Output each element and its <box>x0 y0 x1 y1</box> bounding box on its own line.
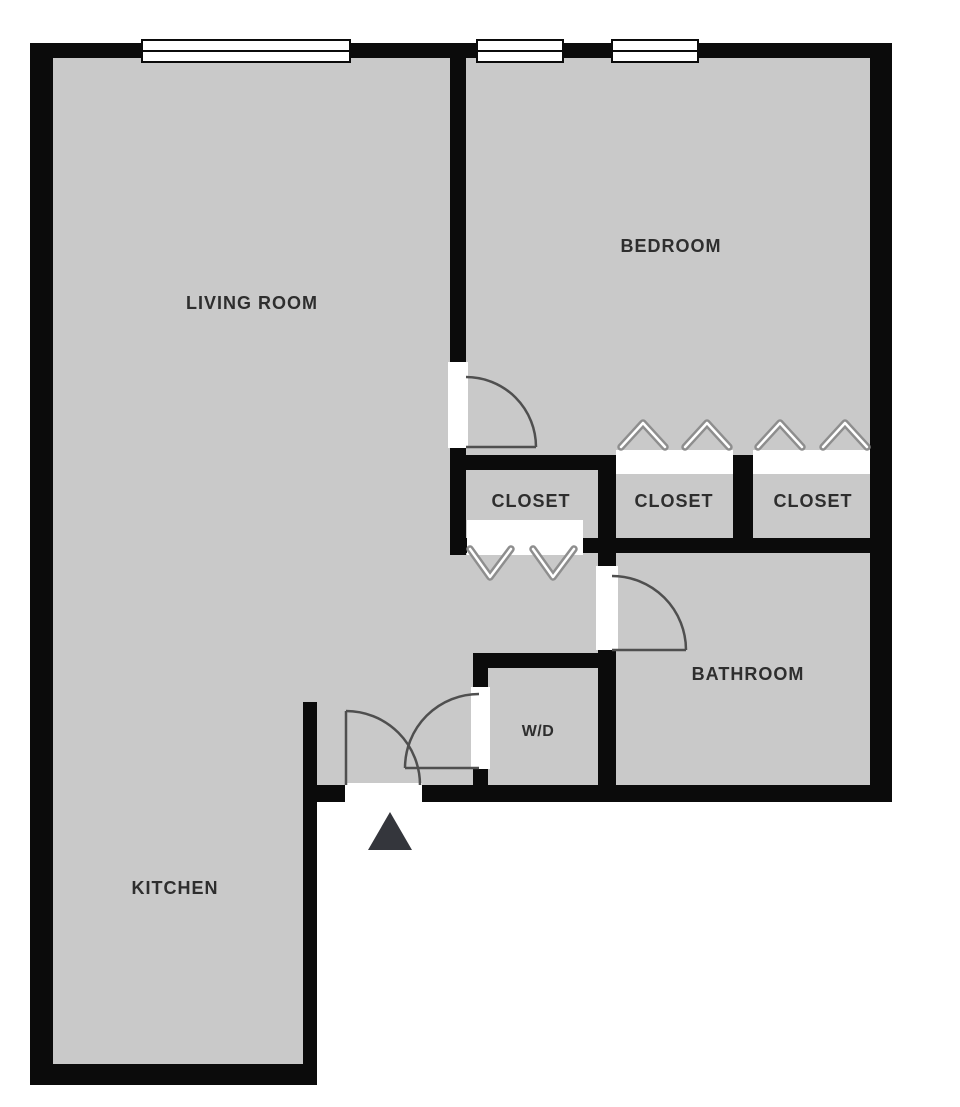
closet-bedroom-right-opening <box>753 450 870 474</box>
room-label-closet-hall: CLOSET <box>491 491 570 511</box>
floor-plan: LIVING ROOM BEDROOM CLOSET CLOSET CLOSET… <box>0 0 960 1107</box>
wall-entry-stub <box>303 785 345 802</box>
room-label-living-room: LIVING ROOM <box>186 293 318 313</box>
closet-hall-opening <box>467 520 583 555</box>
room-label-kitchen: KITCHEN <box>132 878 219 898</box>
room-label-closet-bedroom-left: CLOSET <box>634 491 713 511</box>
wall-wd-top <box>473 653 600 668</box>
wall-bottom-main <box>420 785 892 802</box>
room-label-bathroom: BATHROOM <box>692 664 805 684</box>
entry-door-opening <box>345 783 422 804</box>
bedroom-door-opening <box>448 362 468 448</box>
wall-living-bedroom-divider <box>450 43 466 365</box>
wd-door-opening <box>471 687 490 769</box>
wall-kitchen-right <box>303 702 317 1085</box>
wall-kitchen-bottom <box>30 1064 317 1085</box>
room-label-bedroom: BEDROOM <box>621 236 722 256</box>
wall-closet-top <box>450 455 616 470</box>
room-label-closet-bedroom-right: CLOSET <box>773 491 852 511</box>
closet-bedroom-left-opening <box>616 450 733 474</box>
wall-left <box>30 43 53 1085</box>
entrance-arrow-icon <box>368 812 412 850</box>
wall-right <box>870 43 892 802</box>
room-label-washer-dryer: W/D <box>522 723 555 740</box>
floor-plan-canvas: LIVING ROOM BEDROOM CLOSET CLOSET CLOSET… <box>0 0 960 1107</box>
bathroom-door-opening <box>596 566 618 650</box>
